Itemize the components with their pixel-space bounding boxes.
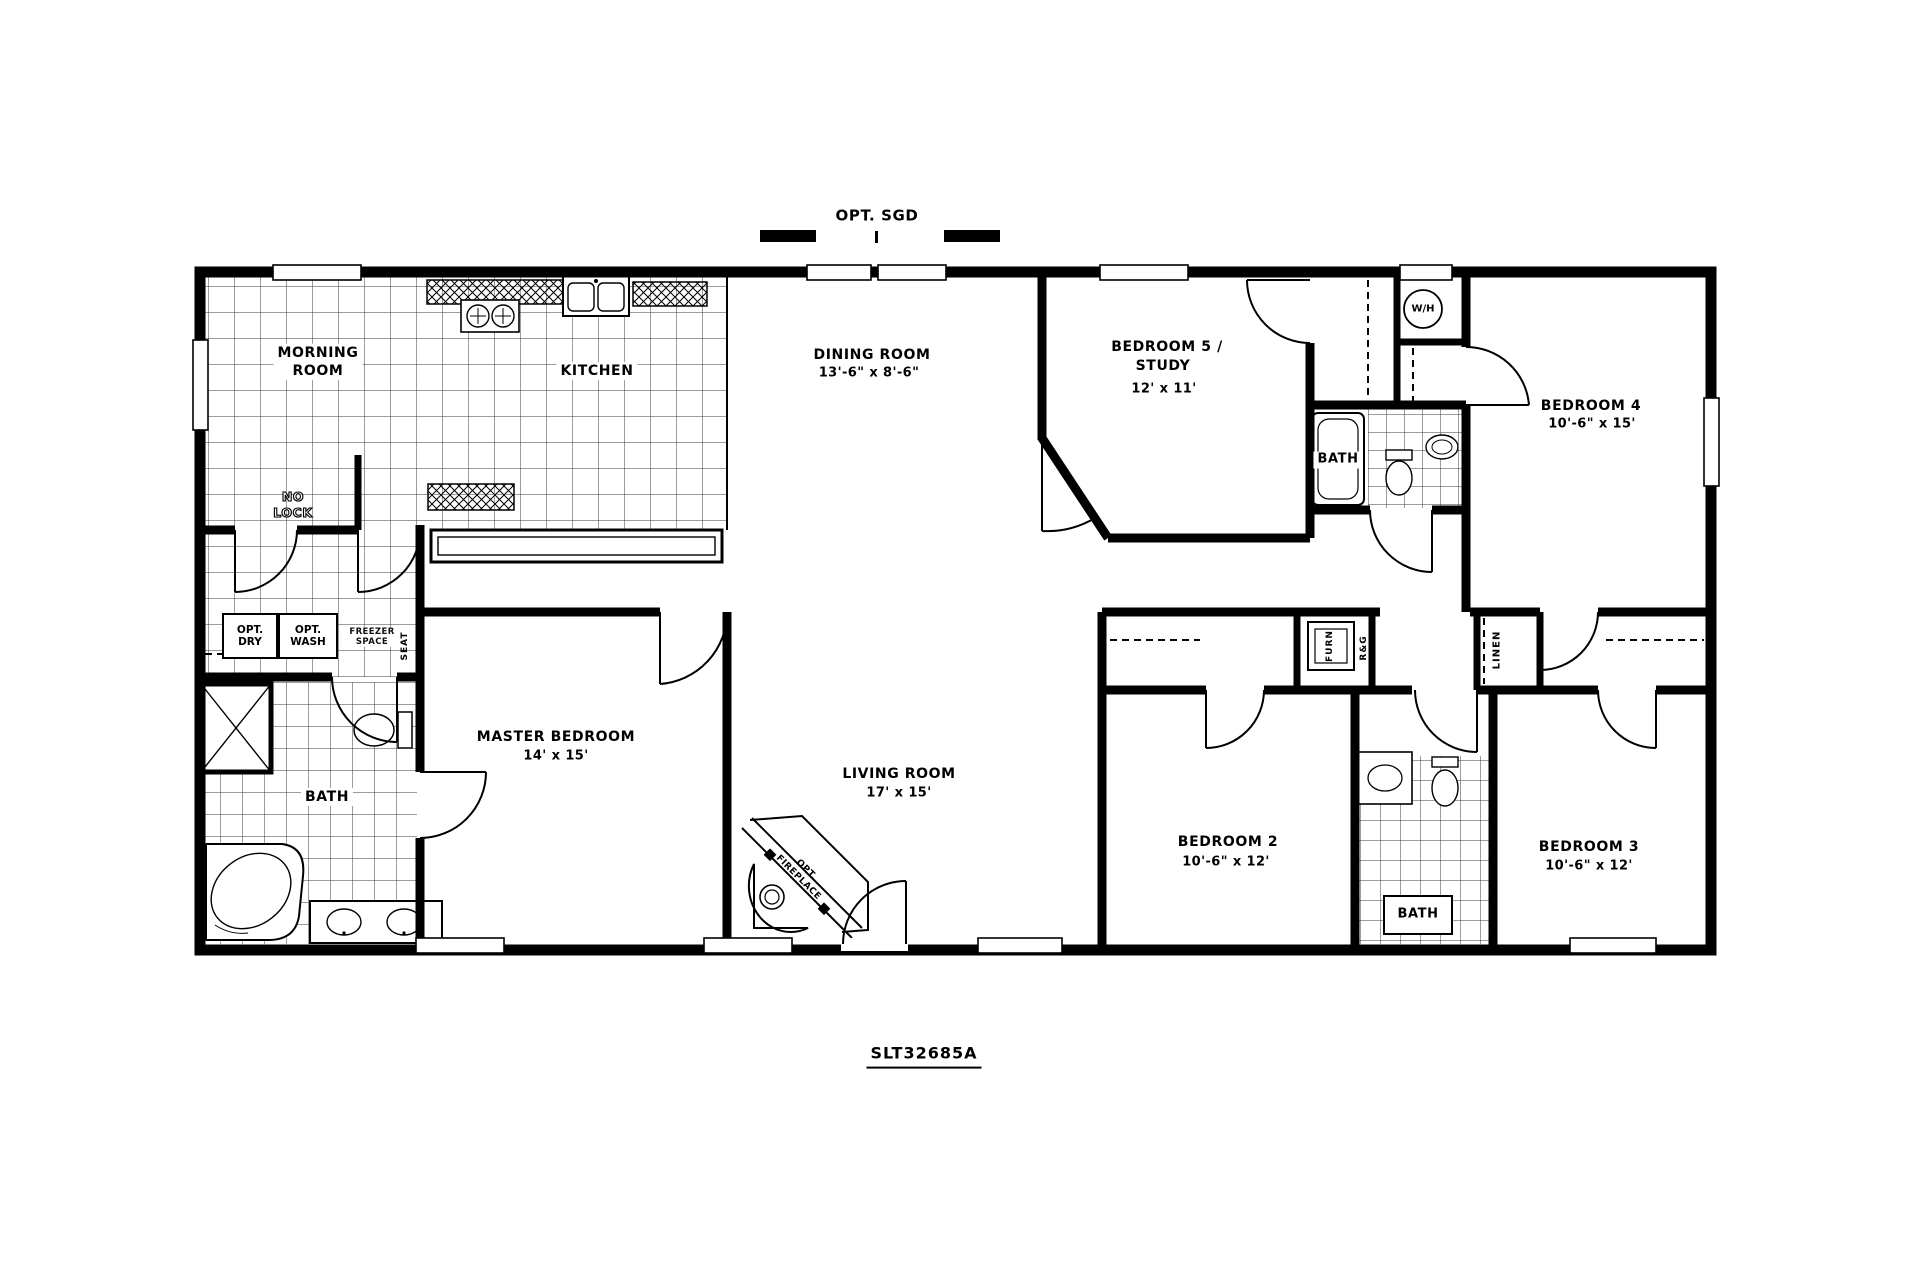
- second-bath-label: BATH: [1397, 907, 1438, 924]
- kitchen-bar-counter: [431, 530, 722, 562]
- bedroom4-dims: 10'-6" x 15': [1548, 417, 1636, 434]
- dining-room-dims: 13'-6" x 8'-6": [819, 366, 920, 383]
- bedroom5-label-line1: BEDROOM 5 /: [1111, 338, 1223, 356]
- second-bath-toilet-icon: [1432, 757, 1458, 806]
- opt-sgd-label: OPT. SGD: [836, 206, 919, 226]
- range-gas-label: R&G: [1359, 635, 1371, 660]
- plan-number: SLT32685A: [866, 1044, 981, 1069]
- bedroom5-label-line2: STUDY: [1136, 357, 1191, 375]
- seat-label: SEAT: [400, 631, 412, 660]
- master-bedroom-dims: 14' x 15': [523, 749, 588, 766]
- master-toilet-icon: [354, 712, 412, 748]
- bedroom5-dims: 12' x 11': [1131, 382, 1196, 399]
- opt-washer-box: OPT. WASH: [278, 613, 338, 659]
- floor-plan-page: OPT. SGD MORNING ROOM KITCHEN NO LOCK OP…: [0, 0, 1920, 1272]
- kitchen-sink-icon: [563, 276, 629, 316]
- linen-label: LINEN: [1491, 631, 1504, 670]
- bedroom3-dims: 10'-6" x 12': [1545, 859, 1633, 876]
- living-room-label: LIVING ROOM: [842, 765, 955, 783]
- freezer-space-label: FREEZER SPACE: [345, 627, 398, 647]
- hall-bath-toilet-icon: [1386, 450, 1412, 495]
- bedroom3-label: BEDROOM 3: [1539, 838, 1639, 856]
- bedroom2-label: BEDROOM 2: [1178, 833, 1278, 851]
- living-room-dims: 17' x 15': [866, 786, 931, 803]
- opt-sgd-marks: [760, 230, 1000, 243]
- hall-bath-label: BATH: [1313, 452, 1362, 469]
- front-door-opening: [841, 938, 908, 951]
- bedroom2-dims: 10'-6" x 12': [1182, 855, 1270, 872]
- no-lock-label: NO LOCK: [269, 489, 316, 522]
- second-bath-sink-icon: [1358, 752, 1412, 804]
- opt-dryer-box: OPT. DRY: [222, 613, 278, 659]
- bedroom4-label: BEDROOM 4: [1541, 397, 1641, 415]
- dining-room-label: DINING ROOM: [814, 346, 931, 364]
- master-bedroom-label: MASTER BEDROOM: [477, 728, 635, 746]
- stove-icon: [461, 300, 519, 332]
- water-heater-label: W/H: [1411, 303, 1434, 316]
- kitchen-label: KITCHEN: [556, 362, 637, 380]
- garden-tub-icon: [196, 838, 306, 945]
- shower-icon: [201, 684, 271, 772]
- master-bath-label: BATH: [301, 788, 353, 806]
- morning-room-label: MORNING ROOM: [274, 344, 363, 380]
- furnace-label: FURN: [1325, 630, 1337, 662]
- hall-bath-sink-icon: [1426, 435, 1458, 459]
